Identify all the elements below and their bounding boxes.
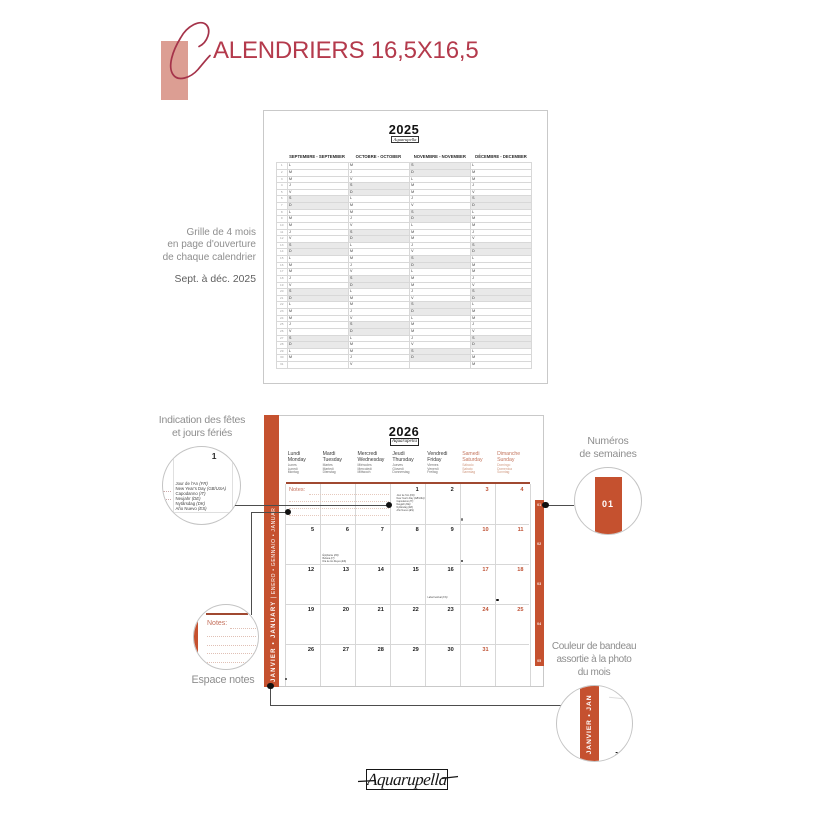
svg-text:Aquarupella: Aquarupella [366, 770, 448, 789]
